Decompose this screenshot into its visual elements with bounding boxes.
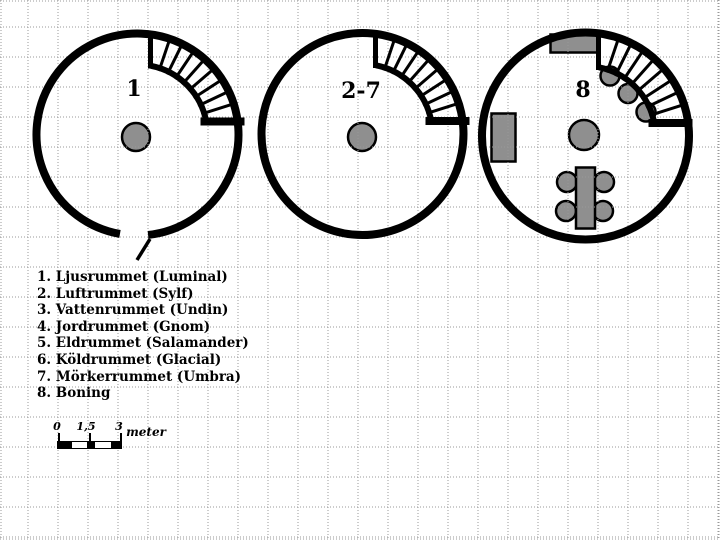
legend-item: 5. Eldrummet (Salamander) — [37, 335, 249, 352]
room-legend: 1. Ljusrummet (Luminal) 2. Luftrummet (S… — [37, 269, 249, 402]
scale-segment — [72, 442, 87, 448]
scale-segment — [111, 442, 121, 448]
scale-bar-stripes — [57, 441, 122, 449]
scale-tick — [58, 433, 60, 441]
tower-8-label: 8 — [575, 77, 590, 103]
scale-segment — [87, 442, 96, 448]
legend-item: 4. Jordrummet (Gnom) — [37, 319, 249, 336]
scale-bar: 0 1,5 3 meter — [0, 420, 220, 460]
scale-tick-label-3: 3 — [115, 420, 123, 433]
central-pillar-tower-2-7 — [348, 123, 376, 151]
tower-1-spiral-staircase — [151, 32, 245, 123]
floorplan-page: 1 2-7 8 1. Ljusrummet (Luminal) 2. Luftr… — [0, 0, 720, 540]
scale-tick — [120, 433, 122, 441]
chair-3 — [556, 201, 576, 221]
chair-2 — [594, 172, 614, 192]
tower-1-label: 1 — [126, 76, 141, 102]
scale-tick-label-1-5: 1,5 — [76, 420, 95, 433]
legend-item: 8. Boning — [37, 385, 249, 402]
scale-tick-label-0: 0 — [53, 420, 61, 433]
chest — [492, 114, 516, 162]
legend-item: 7. Mörkerrummet (Umbra) — [37, 369, 249, 386]
scale-segment — [95, 442, 111, 448]
legend-item: 1. Ljusrummet (Luminal) — [37, 269, 249, 286]
legend-item: 2. Luftrummet (Sylf) — [37, 286, 249, 303]
scale-unit-label: meter — [126, 425, 166, 439]
central-pillar-tower-8 — [569, 120, 599, 150]
tower-2-7-spiral-staircase — [376, 31, 470, 122]
tower-2-7-label: 2-7 — [341, 78, 381, 104]
legend-item: 6. Köldrummet (Glacial) — [37, 352, 249, 369]
scale-segment — [58, 442, 72, 448]
scale-tick — [89, 433, 91, 441]
legend-item: 3. Vattenrummet (Undin) — [37, 302, 249, 319]
chair-1 — [557, 172, 577, 192]
